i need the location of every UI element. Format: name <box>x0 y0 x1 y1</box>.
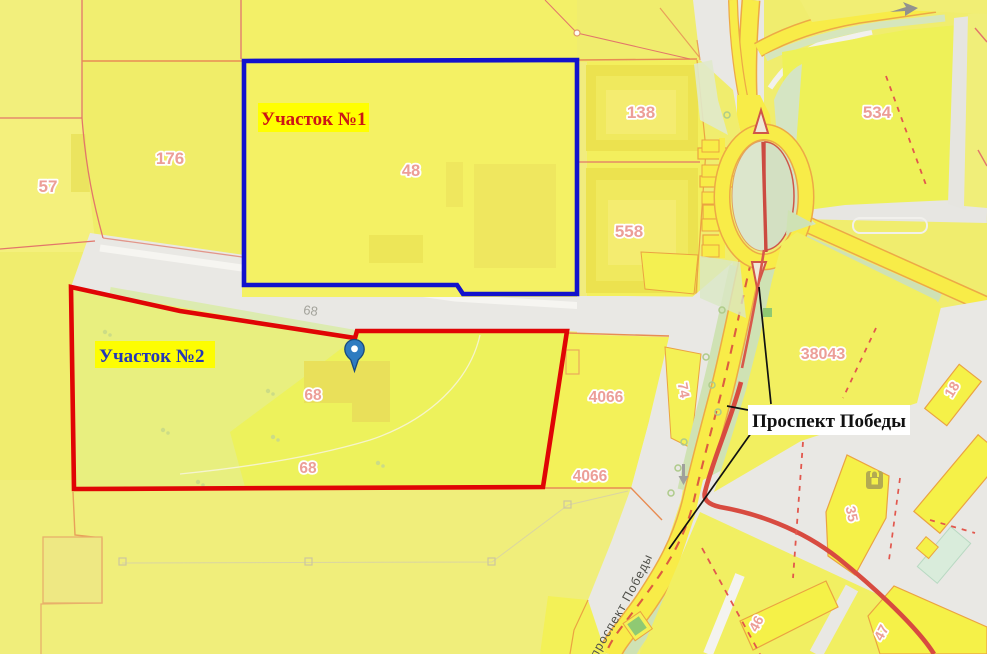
svg-text:4066: 4066 <box>573 468 608 485</box>
svg-text:68: 68 <box>299 460 317 477</box>
svg-text:Проспект Победы: Проспект Победы <box>752 411 906 432</box>
svg-text:176: 176 <box>156 149 184 168</box>
svg-text:Участок №2: Участок №2 <box>99 346 204 367</box>
svg-text:38043: 38043 <box>801 346 846 363</box>
svg-text:74: 74 <box>675 381 693 399</box>
svg-text:48: 48 <box>402 162 420 180</box>
svg-text:534: 534 <box>863 103 892 122</box>
svg-text:Участок №1: Участок №1 <box>261 109 366 130</box>
svg-text:4066: 4066 <box>589 389 624 406</box>
svg-text:57: 57 <box>39 177 58 196</box>
svg-text:138: 138 <box>627 103 655 122</box>
svg-text:68: 68 <box>302 302 318 319</box>
svg-text:558: 558 <box>615 222 643 241</box>
svg-text:68: 68 <box>304 387 322 404</box>
